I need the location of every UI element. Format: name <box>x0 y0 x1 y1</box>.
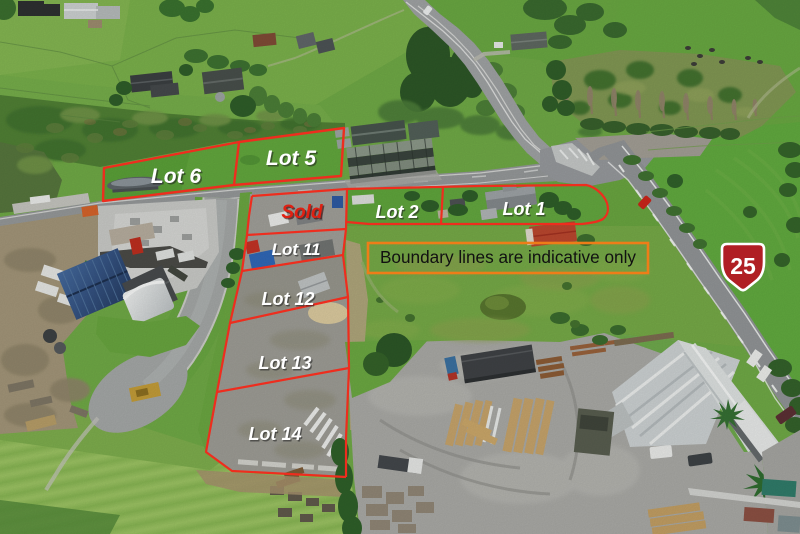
svg-text:Boundary lines are indicative: Boundary lines are indicative only <box>380 247 636 267</box>
svg-text:Lot 1: Lot 1 <box>503 199 546 219</box>
svg-text:Lot 2: Lot 2 <box>376 202 419 222</box>
svg-text:Lot 6: Lot 6 <box>151 165 201 188</box>
svg-text:Lot 14: Lot 14 <box>248 424 301 444</box>
svg-text:Lot 13: Lot 13 <box>258 353 311 373</box>
svg-text:25: 25 <box>730 253 756 279</box>
svg-text:Lot 5: Lot 5 <box>266 147 316 170</box>
svg-text:Sold: Sold <box>281 202 323 223</box>
svg-text:Lot 12: Lot 12 <box>261 289 314 309</box>
svg-text:Lot 11: Lot 11 <box>272 240 321 259</box>
